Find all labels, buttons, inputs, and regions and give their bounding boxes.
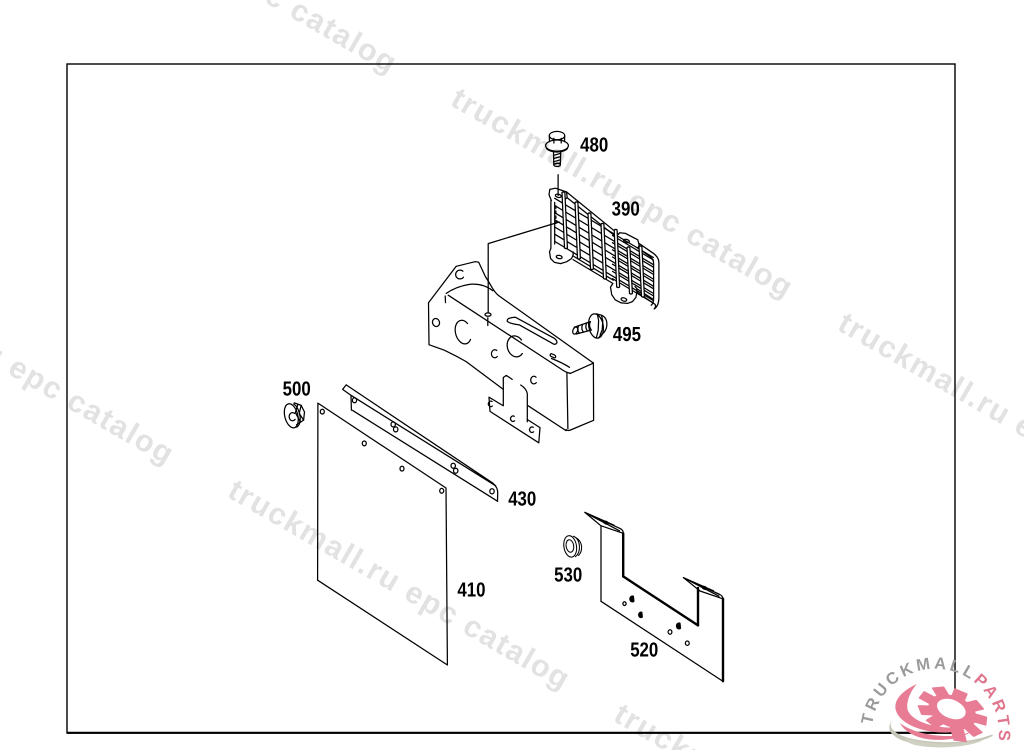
- svg-text:500: 500: [283, 378, 311, 400]
- svg-text:530: 530: [554, 564, 582, 586]
- svg-text:390: 390: [612, 198, 640, 220]
- svg-text:495: 495: [613, 324, 641, 346]
- svg-text:430: 430: [508, 488, 536, 510]
- svg-text:410: 410: [457, 579, 485, 601]
- svg-text:520: 520: [630, 640, 658, 662]
- svg-text:480: 480: [580, 134, 608, 156]
